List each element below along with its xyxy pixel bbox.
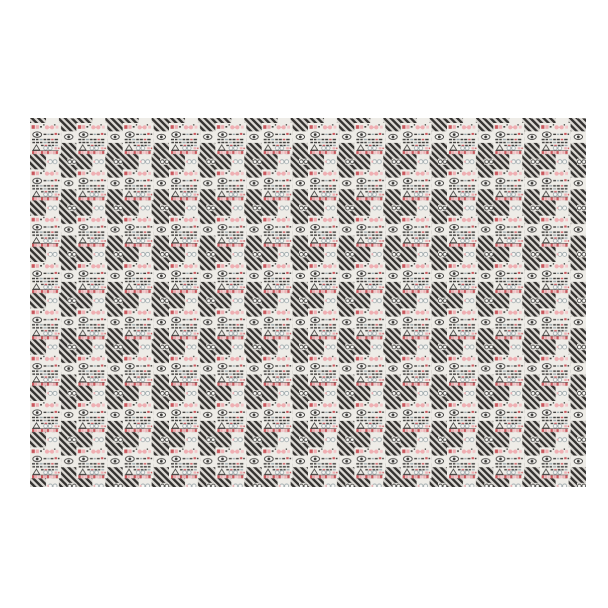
- page-background: [0, 0, 608, 608]
- fabric-swatch-image: [30, 118, 586, 487]
- fabric-pattern-svg: [30, 118, 586, 487]
